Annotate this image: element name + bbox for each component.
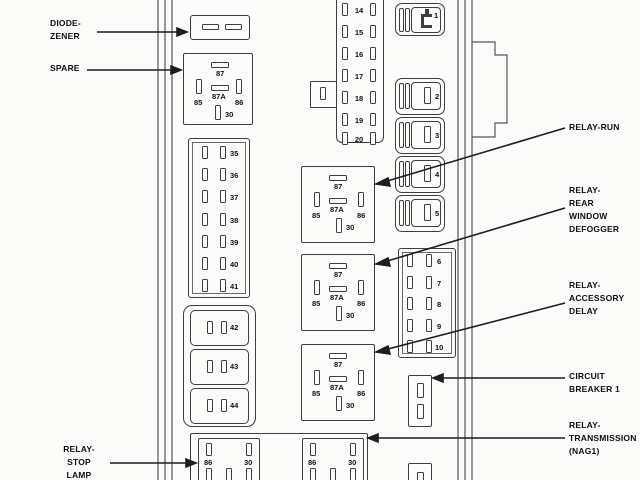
relay-pin-87-slot — [329, 175, 347, 181]
cartridge-bar — [399, 8, 404, 32]
fusebox-diagram: DIODE 2 DIODE- ZENER SPARE RELAY- STOP L… — [0, 0, 640, 480]
fuse-number: 19 — [351, 116, 367, 125]
top-partial-label: DIODE 2 — [58, 0, 93, 4]
cartridge-bar — [405, 83, 410, 109]
fuse-slot — [202, 190, 208, 203]
relay-pin-85-slot — [314, 192, 320, 207]
fuse-slot — [426, 340, 432, 353]
fuse-slot — [221, 321, 227, 334]
relay-pin-87a-label: 87A — [330, 293, 344, 302]
fuse-slot — [221, 399, 227, 412]
relay-pin-86-label: 86 — [357, 389, 365, 398]
fuse-slot — [407, 276, 413, 289]
relay-pin-86-slot — [358, 192, 364, 207]
diode-zener-socket — [190, 15, 250, 40]
fuse-number: 38 — [230, 216, 238, 225]
relay-pin-30-label: 30 — [346, 401, 354, 410]
fuse-row: 36 — [189, 168, 249, 182]
relay-pin-87a-slot — [329, 376, 347, 382]
right-border-lines — [458, 0, 472, 480]
fuse-row: 7 — [399, 276, 455, 290]
relay-pin-30-slot — [350, 443, 356, 456]
fuse-number: 41 — [230, 282, 238, 291]
relay-pin-85-slot — [196, 79, 202, 94]
fuse-slot — [342, 113, 348, 126]
cartridge-bar — [405, 200, 410, 226]
fuse-row: 14 — [337, 3, 383, 17]
fuse-number: 7 — [437, 279, 441, 288]
fuse-slot — [320, 87, 326, 100]
fuse-row: 9 — [399, 319, 455, 333]
relay-pin-86-label: 86 — [204, 458, 212, 467]
fuse-slot — [220, 235, 226, 248]
cartridge-bar — [405, 161, 410, 187]
fuse-slot — [426, 276, 432, 289]
fuse-box-43: 43 — [190, 349, 249, 385]
spare-relay: 87 87A 85 86 30 — [183, 53, 253, 125]
fuse-number: 17 — [351, 72, 367, 81]
arrow-diode-zener — [97, 28, 187, 36]
fuse-number: 16 — [351, 50, 367, 59]
relay-accessory-delay: 87 87A 85 86 30 — [301, 344, 375, 421]
fuse-row: 6 — [399, 254, 455, 268]
relay-pin-87a-slot — [329, 286, 347, 292]
fuse-slot — [370, 47, 376, 60]
fuse-number: 6 — [437, 257, 441, 266]
fuse-slot — [370, 25, 376, 38]
relay-pin-86-slot — [358, 370, 364, 385]
relay-pin-slot — [330, 468, 336, 480]
cartridge-bar — [405, 8, 410, 32]
relay-pin-slot — [350, 468, 356, 480]
relay-pin-86-label: 86 — [308, 458, 316, 467]
fuse-slot — [207, 360, 213, 373]
fuse-slot — [407, 297, 413, 310]
fuse-block-6-10: 6 7 8 9 10 — [398, 248, 456, 358]
relay-pin-87-label: 87 — [216, 69, 224, 78]
relay-pin-85-slot — [314, 280, 320, 295]
cartridge-fuse-4: 4 — [395, 156, 445, 193]
relay-pin-30-label: 30 — [346, 223, 354, 232]
relay-stop-lamp-label: RELAY- STOP LAMP — [51, 443, 107, 480]
relay-pin-87-slot — [329, 353, 347, 359]
fuse-slot — [202, 257, 208, 270]
relay-pin-87-slot — [329, 263, 347, 269]
fuse-slot — [220, 190, 226, 203]
relay-pin-30-slot — [336, 218, 342, 233]
fuse-row: 37 — [189, 190, 249, 204]
fuse-column-35-41: 35 36 37 38 39 40 41 — [188, 138, 250, 298]
relay-pin-87-label: 87 — [334, 182, 342, 191]
relay-pin-slot — [246, 468, 252, 480]
cartridge-fuse-1: 1 — [395, 3, 445, 36]
relay-pin-86-label: 86 — [235, 98, 243, 107]
fuse-number: 42 — [230, 323, 238, 332]
fuse-slot — [370, 113, 376, 126]
fuse-slot — [424, 165, 431, 182]
relay-pin-30-slot — [336, 396, 342, 411]
fuse-row: 19 — [337, 113, 383, 127]
fuse-number: 1 — [434, 11, 438, 20]
fuse-row: 16 — [337, 47, 383, 61]
fuse-number: 36 — [230, 171, 238, 180]
fuse-number: 40 — [230, 260, 238, 269]
arrow-relay-transmission — [368, 434, 565, 442]
fuse-box-42: 42 — [190, 310, 249, 346]
relay-pin-slot — [310, 468, 316, 480]
fuse-row: 35 — [189, 146, 249, 160]
fuse-box-group-42-44: 42 43 44 — [183, 305, 256, 427]
fuse-slot — [207, 321, 213, 334]
mounting-tab-outline — [472, 42, 507, 137]
fuse-slot — [207, 399, 213, 412]
fuse-slot — [202, 146, 208, 159]
fuse-number: 20 — [351, 135, 367, 144]
fuse-slot — [370, 3, 376, 16]
relay-pin-86-slot — [206, 443, 212, 456]
circuit-breaker-1 — [408, 375, 432, 427]
fuse-row: 10 — [399, 340, 455, 354]
cartridge-bar — [405, 122, 410, 148]
cartridge-bar — [399, 200, 404, 226]
fuse-slot — [342, 91, 348, 104]
arrow-circuit-breaker-1 — [433, 374, 565, 382]
fuse-slot — [407, 340, 413, 353]
fuse-row: 18 — [337, 91, 383, 105]
fuse-slot — [342, 132, 348, 145]
fuse-slot — [220, 146, 226, 159]
relay-pin-87a-slot — [211, 85, 229, 91]
fuse-slot — [220, 279, 226, 292]
fuse-slot — [407, 319, 413, 332]
diode-slot — [202, 24, 219, 30]
fuse-slot — [424, 126, 431, 143]
relay-pin-85-label: 85 — [312, 389, 320, 398]
breaker-slot — [417, 383, 424, 398]
fuse-slot — [426, 254, 432, 267]
relay-pin-86-label: 86 — [357, 211, 365, 220]
breaker-slot — [417, 404, 424, 419]
relay-pin-85-label: 85 — [194, 98, 202, 107]
arrow-spare — [87, 66, 181, 74]
breaker-slot — [417, 472, 424, 480]
fuse-slot — [407, 254, 413, 267]
stop-lamp-relay-module: 86 30 — [198, 438, 260, 480]
relay-pin-slot — [226, 468, 232, 480]
fuse-slot — [221, 360, 227, 373]
fuse-slot — [220, 257, 226, 270]
relay-pin-85-slot — [314, 370, 320, 385]
fuse-slot — [202, 213, 208, 226]
arrow-relay-stop-lamp — [110, 459, 196, 467]
relay-pin-30-label: 30 — [244, 458, 252, 467]
fuse-slot — [370, 69, 376, 82]
fuse-number: 5 — [435, 209, 439, 218]
relay-pin-30-label: 30 — [348, 458, 356, 467]
relay-run-label: RELAY-RUN — [569, 121, 620, 134]
fuse-number: 18 — [351, 94, 367, 103]
fuse-number: 4 — [435, 170, 439, 179]
fuse-slot — [424, 87, 431, 104]
strip-side-notch — [310, 81, 337, 108]
cartridge-element-icon — [425, 9, 429, 15]
fuse-number: 37 — [230, 193, 238, 202]
relay-pin-30-slot — [246, 443, 252, 456]
fuse-number: 15 — [351, 28, 367, 37]
fuse-slot — [202, 279, 208, 292]
relay-pin-30-label: 30 — [225, 110, 233, 119]
relay-pin-30-label: 30 — [346, 311, 354, 320]
relay-pin-87-slot — [211, 62, 229, 68]
fuse-slot — [202, 168, 208, 181]
fuse-number: 10 — [435, 343, 443, 352]
fuse-number: 2 — [435, 92, 439, 101]
relay-transmission-nag1-label: RELAY- TRANSMISSION (NAG1) — [569, 419, 637, 458]
relay-pin-87a-slot — [329, 198, 347, 204]
fuse-number: 8 — [437, 300, 441, 309]
fuse-box-44: 44 — [190, 388, 249, 424]
relay-pin-86-slot — [236, 79, 242, 94]
fuse-slot — [370, 132, 376, 145]
fuse-slot — [220, 213, 226, 226]
fuse-number: 44 — [230, 401, 238, 410]
relay-accessory-delay-label: RELAY- ACCESSORY DELAY — [569, 279, 624, 318]
fuse-slot — [424, 204, 431, 221]
relay-pin-87a-label: 87A — [330, 383, 344, 392]
fuse-row: 39 — [189, 235, 249, 249]
fuse-slot — [342, 25, 348, 38]
relay-pin-87-label: 87 — [334, 270, 342, 279]
bottom-edge-component — [408, 463, 432, 480]
fuse-slot — [342, 47, 348, 60]
fuse-row: 20 — [337, 132, 383, 146]
spare-label: SPARE — [50, 62, 80, 75]
circuit-breaker-1-label: CIRCUIT BREAKER 1 — [569, 370, 620, 396]
left-border-lines — [158, 0, 172, 480]
cartridge-fuse-2: 2 — [395, 78, 445, 115]
relay-rear-window-defogger-label: RELAY- REAR WINDOW DEFOGGER — [569, 184, 619, 236]
fuse-row: 40 — [189, 257, 249, 271]
fuse-slot — [370, 91, 376, 104]
relay-rear-window-defogger: 87 87A 85 86 30 — [301, 254, 375, 331]
relay-pin-87a-label: 87A — [212, 92, 226, 101]
cartridge-body: 1 — [411, 7, 441, 33]
fuse-row: 41 — [189, 279, 249, 293]
relay-pin-30-slot — [336, 306, 342, 321]
cartridge-bar — [399, 83, 404, 109]
relay-pin-85-label: 85 — [312, 211, 320, 220]
diode-slot — [225, 24, 242, 30]
fuse-slot — [426, 319, 432, 332]
fuse-slot — [342, 69, 348, 82]
diode-zener-label: DIODE- ZENER — [50, 17, 81, 43]
fuse-slot — [220, 168, 226, 181]
fuse-number: 35 — [230, 149, 238, 158]
fuse-number: 9 — [437, 322, 441, 331]
fuse-number: 43 — [230, 362, 238, 371]
relay-pin-87-label: 87 — [334, 360, 342, 369]
fuse-number: 14 — [351, 6, 367, 15]
cartridge-element-icon — [421, 14, 432, 28]
fuse-strip-14-20: 14 15 16 17 18 19 20 — [336, 0, 384, 143]
relay-pin-86-slot — [358, 280, 364, 295]
fuse-row: 15 — [337, 25, 383, 39]
relay-pin-86-label: 86 — [357, 299, 365, 308]
fuse-slot — [202, 235, 208, 248]
relay-pin-slot — [206, 468, 212, 480]
cartridge-bar — [399, 122, 404, 148]
relay-pin-85-label: 85 — [312, 299, 320, 308]
transmission-relay-module: 86 30 — [302, 438, 364, 480]
fuse-slot — [426, 297, 432, 310]
cartridge-fuse-5: 5 — [395, 195, 445, 232]
fuse-number: 39 — [230, 238, 238, 247]
relay-pin-87a-label: 87A — [330, 205, 344, 214]
fuse-row: 8 — [399, 297, 455, 311]
relay-run: 87 87A 85 86 30 — [301, 166, 375, 243]
fuse-row: 17 — [337, 69, 383, 83]
fuse-slot — [342, 3, 348, 16]
cartridge-bar — [399, 161, 404, 187]
cartridge-fuse-3: 3 — [395, 117, 445, 154]
relay-pin-30-slot — [215, 105, 221, 120]
fuse-row: 38 — [189, 213, 249, 227]
fuse-number: 3 — [435, 131, 439, 140]
relay-pin-86-slot — [310, 443, 316, 456]
